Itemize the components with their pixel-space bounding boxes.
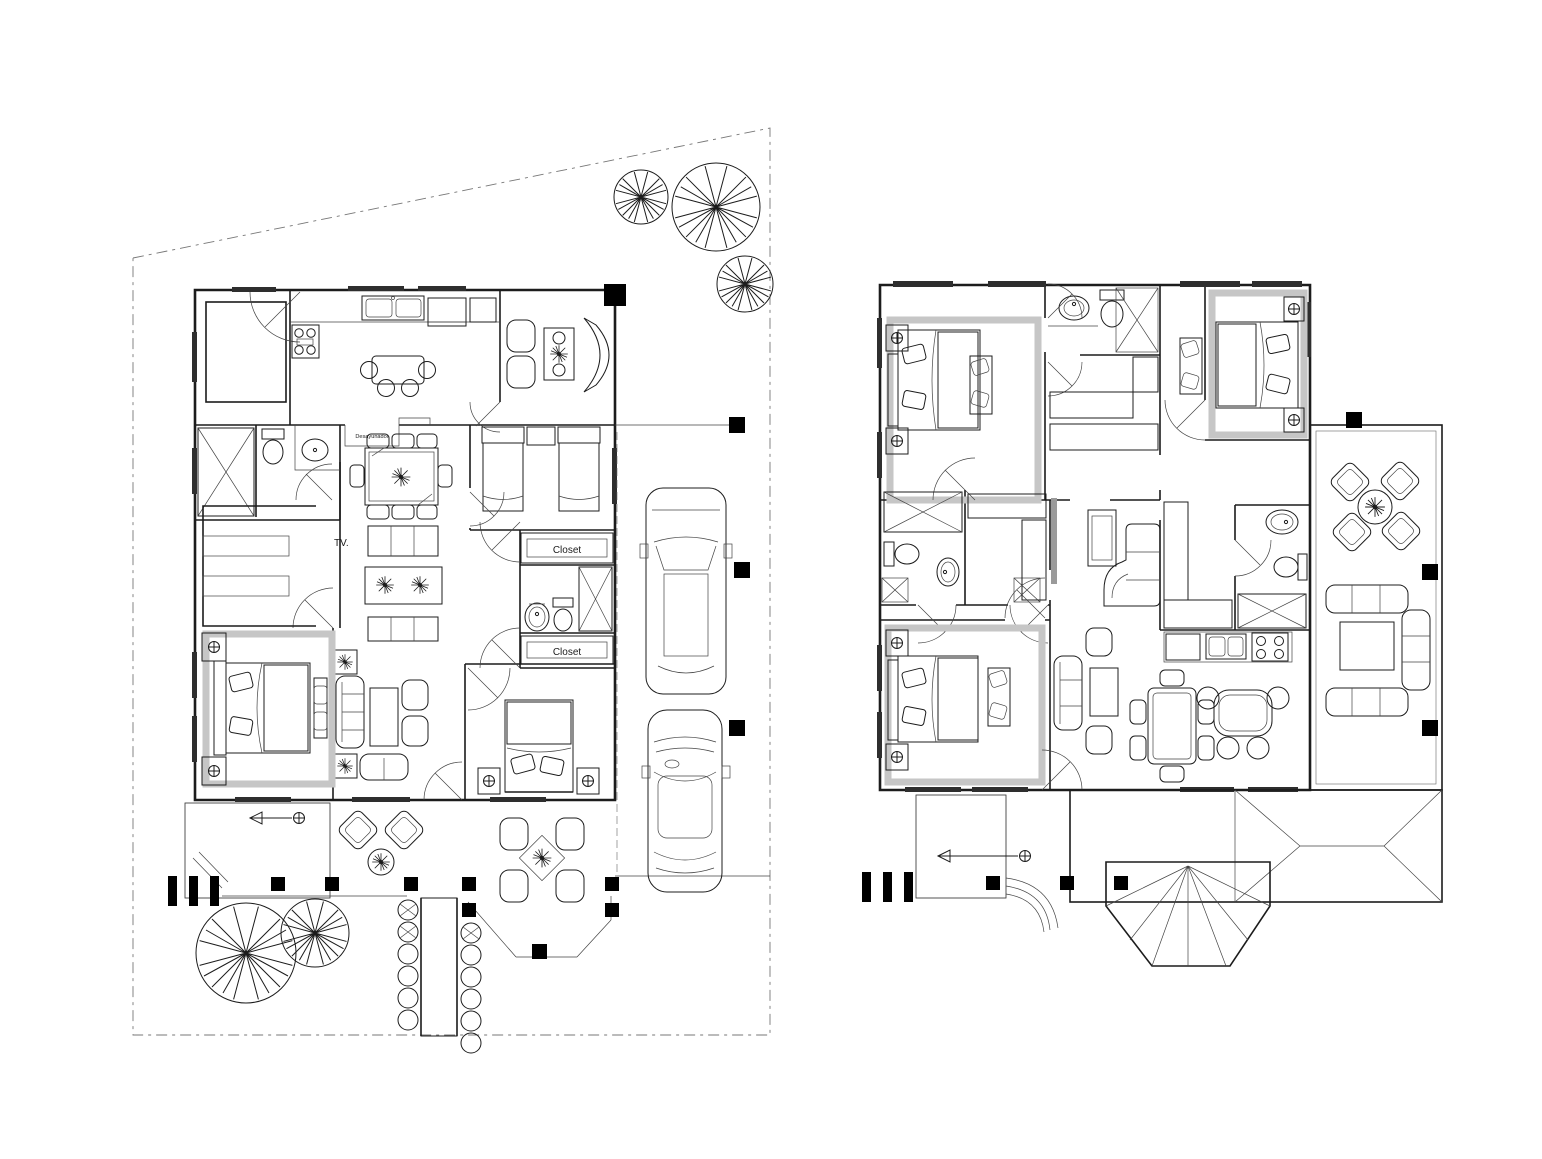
kitchen-sink-icon bbox=[362, 296, 424, 320]
sink-icon bbox=[937, 558, 959, 586]
curved-bench bbox=[584, 318, 609, 392]
kitchen bbox=[290, 296, 500, 432]
armchair bbox=[1086, 726, 1112, 754]
breakfast-nook-label: Desayunador bbox=[355, 434, 388, 440]
toilet-icon bbox=[553, 598, 573, 631]
front-stairs bbox=[185, 803, 330, 898]
toilet-icon bbox=[262, 429, 284, 464]
door-swing bbox=[468, 668, 510, 710]
floor-plan-canvas: Desayunador TV. bbox=[0, 0, 1542, 1159]
terrace-door-swing bbox=[1042, 750, 1082, 790]
window-symbols bbox=[877, 281, 1311, 792]
kitchen-sink-icon bbox=[1206, 634, 1246, 659]
hall-closet bbox=[203, 506, 316, 626]
structural-columns bbox=[168, 284, 750, 959]
queen-bed bbox=[888, 330, 980, 430]
window-symbols bbox=[192, 286, 617, 802]
sectional-sofa bbox=[1104, 524, 1160, 606]
wardrobe-hatch-top bbox=[1050, 357, 1158, 450]
upper-floor-plan bbox=[862, 281, 1442, 966]
stove-icon bbox=[292, 325, 319, 358]
sofa bbox=[336, 676, 364, 748]
twin-bed bbox=[482, 427, 524, 511]
hip-roof bbox=[1235, 790, 1442, 902]
door-swing bbox=[480, 628, 520, 668]
shower-icon bbox=[579, 567, 612, 631]
upper-living-room bbox=[1051, 498, 1160, 754]
tree-group-top-right bbox=[614, 163, 773, 312]
lot-boundary bbox=[133, 128, 770, 1035]
chaise-lounge bbox=[988, 668, 1010, 726]
nightstand bbox=[527, 427, 555, 445]
coffee-table bbox=[1090, 668, 1118, 716]
bathroom-ground bbox=[198, 425, 340, 516]
toilet-icon bbox=[884, 542, 919, 566]
bedroom-upper-left bbox=[886, 320, 1038, 500]
cabinet bbox=[1166, 634, 1200, 660]
sedan-car bbox=[642, 710, 730, 892]
console-table bbox=[368, 617, 438, 641]
queen-bed bbox=[1216, 322, 1298, 408]
sink-icon bbox=[295, 425, 340, 470]
door-swing bbox=[1165, 400, 1205, 440]
patio-table bbox=[1340, 622, 1394, 670]
terrace-edges bbox=[222, 425, 770, 957]
tv-console bbox=[1088, 510, 1116, 566]
patio-chair-set bbox=[1329, 460, 1422, 553]
closet-upper-label: Closet bbox=[553, 545, 582, 556]
cabinet bbox=[470, 298, 496, 322]
door-swing bbox=[918, 605, 956, 643]
armchair bbox=[402, 716, 428, 746]
bedroom-lower-left bbox=[886, 578, 1045, 782]
sink-icon bbox=[1048, 296, 1098, 326]
door-swing bbox=[296, 464, 332, 500]
sink-icon bbox=[525, 603, 549, 631]
tv-label: TV. bbox=[334, 538, 349, 549]
door-swing bbox=[1048, 284, 1082, 318]
closet-upper: Closet bbox=[521, 533, 613, 563]
ground-floor-site-plan: Desayunador TV. bbox=[133, 128, 773, 1053]
upper-walls bbox=[880, 285, 1442, 790]
toilet-icon bbox=[1274, 554, 1307, 580]
twin-bed bbox=[558, 427, 600, 511]
master-bedroom bbox=[202, 588, 333, 785]
closet-lower: Closet bbox=[521, 636, 613, 664]
twin-bedroom bbox=[470, 427, 600, 526]
dining-table bbox=[350, 434, 452, 519]
shrub-row bbox=[398, 900, 481, 1053]
tv-panel bbox=[1051, 498, 1057, 584]
stove-icon bbox=[1252, 633, 1288, 661]
shower-icon bbox=[1238, 594, 1306, 628]
door-swing bbox=[1005, 578, 1045, 618]
refrigerator-icon bbox=[428, 298, 466, 326]
queen-bed bbox=[214, 661, 310, 755]
closet-bath-block: Closet Closet bbox=[480, 522, 613, 668]
hall-bathroom bbox=[480, 522, 612, 668]
queen-bed bbox=[888, 656, 978, 742]
closet-lower-label: Closet bbox=[553, 647, 582, 658]
entry-door-swing bbox=[424, 762, 462, 800]
bathroom-mid-right bbox=[1235, 510, 1307, 628]
door-swing bbox=[480, 522, 520, 562]
rear-stairs bbox=[916, 795, 1058, 932]
bed-bench bbox=[314, 678, 327, 738]
sink-icon bbox=[1266, 510, 1298, 534]
laundry-room bbox=[206, 292, 300, 402]
living-room-set bbox=[333, 650, 428, 780]
chaise-lounge bbox=[1180, 338, 1202, 394]
coffee-table bbox=[370, 688, 398, 746]
outdoor-sectional bbox=[1326, 585, 1430, 716]
porch-seating bbox=[507, 318, 609, 392]
armchair bbox=[402, 680, 428, 710]
second-bedroom bbox=[468, 668, 599, 794]
bedroom-upper-right bbox=[1165, 293, 1304, 440]
bathroom-upper-center bbox=[1048, 284, 1158, 396]
tv-area: TV. bbox=[334, 526, 442, 641]
patio-seating-dotted bbox=[500, 818, 584, 902]
upper-breakfast-table bbox=[1197, 687, 1289, 759]
armchair bbox=[1086, 628, 1112, 656]
fan-roof bbox=[1106, 862, 1270, 966]
patio-chairs bbox=[337, 809, 425, 875]
structural-columns bbox=[862, 412, 1438, 902]
toilet-icon bbox=[1100, 290, 1124, 327]
door-swing bbox=[1235, 540, 1271, 576]
entry-walkway bbox=[398, 898, 481, 1053]
upper-dining-table bbox=[1130, 670, 1214, 782]
door-swing bbox=[1048, 362, 1082, 396]
tree-group-bottom-left bbox=[196, 899, 349, 1003]
loveseat bbox=[360, 754, 408, 780]
bed bbox=[505, 700, 573, 792]
coffee-table bbox=[365, 567, 442, 604]
shower-icon bbox=[198, 428, 254, 516]
tv-console bbox=[368, 526, 438, 556]
door-swing bbox=[293, 588, 333, 628]
drawing-sheet: Desayunador TV. bbox=[0, 0, 1542, 1159]
chaise-lounge bbox=[970, 356, 992, 414]
suv-car bbox=[640, 488, 732, 694]
breakfast-table bbox=[361, 356, 436, 397]
counter-hatch bbox=[1164, 600, 1232, 628]
sofa bbox=[1054, 656, 1082, 730]
pantry-hatch bbox=[1164, 502, 1188, 600]
